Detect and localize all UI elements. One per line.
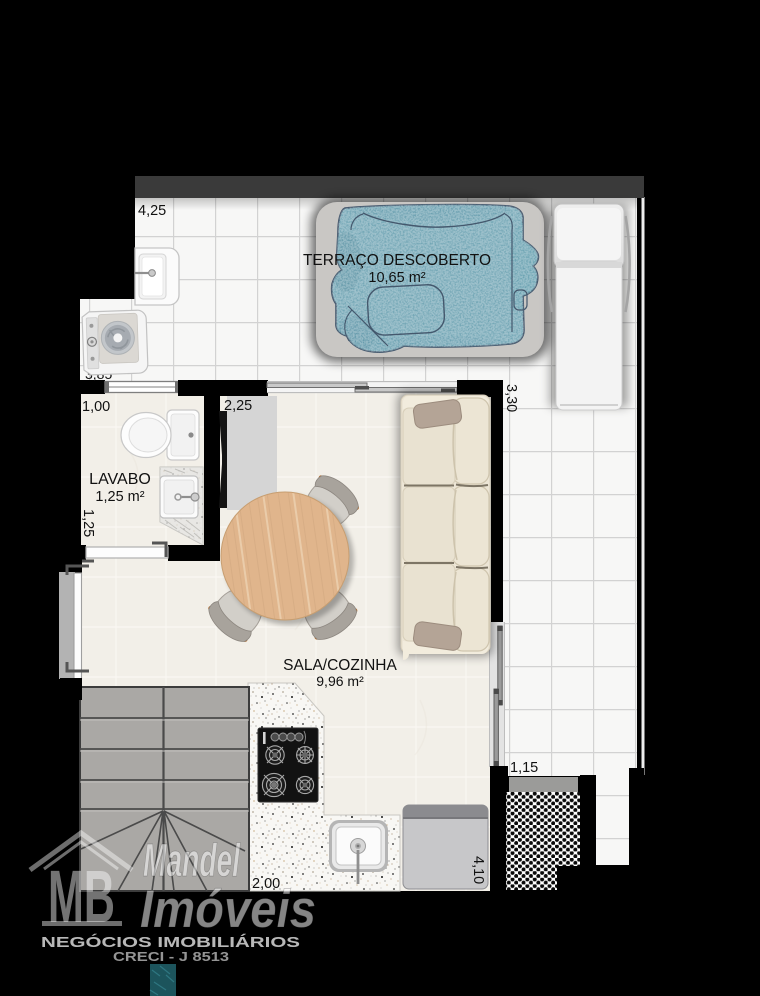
svg-text:Imóveis: Imóveis	[140, 880, 316, 939]
svg-text:2,25: 2,25	[224, 398, 252, 414]
svg-text:1,15: 1,15	[510, 760, 538, 776]
svg-text:NEGÓCIOS IMOBILIÁRIOS: NEGÓCIOS IMOBILIÁRIOS	[41, 933, 300, 951]
svg-text:1,25: 1,25	[80, 509, 96, 537]
svg-text:10,65 m²: 10,65 m²	[368, 270, 425, 286]
svg-text:TERRAÇO DESCOBERTO: TERRAÇO DESCOBERTO	[303, 252, 491, 269]
svg-text:SALA/COZINHA: SALA/COZINHA	[283, 657, 397, 674]
svg-text:3,30: 3,30	[503, 384, 519, 412]
svg-text:4,25: 4,25	[138, 203, 166, 219]
svg-text:1,25 m²: 1,25 m²	[95, 489, 144, 505]
svg-text:Mandel: Mandel	[143, 834, 241, 886]
svg-text:4,10: 4,10	[470, 856, 486, 884]
svg-text:9,96 m²: 9,96 m²	[316, 673, 364, 689]
svg-text:CRECI - J 8513: CRECI - J 8513	[113, 950, 229, 964]
svg-text:LAVABO: LAVABO	[89, 471, 151, 488]
svg-text:1,00: 1,00	[82, 399, 110, 415]
